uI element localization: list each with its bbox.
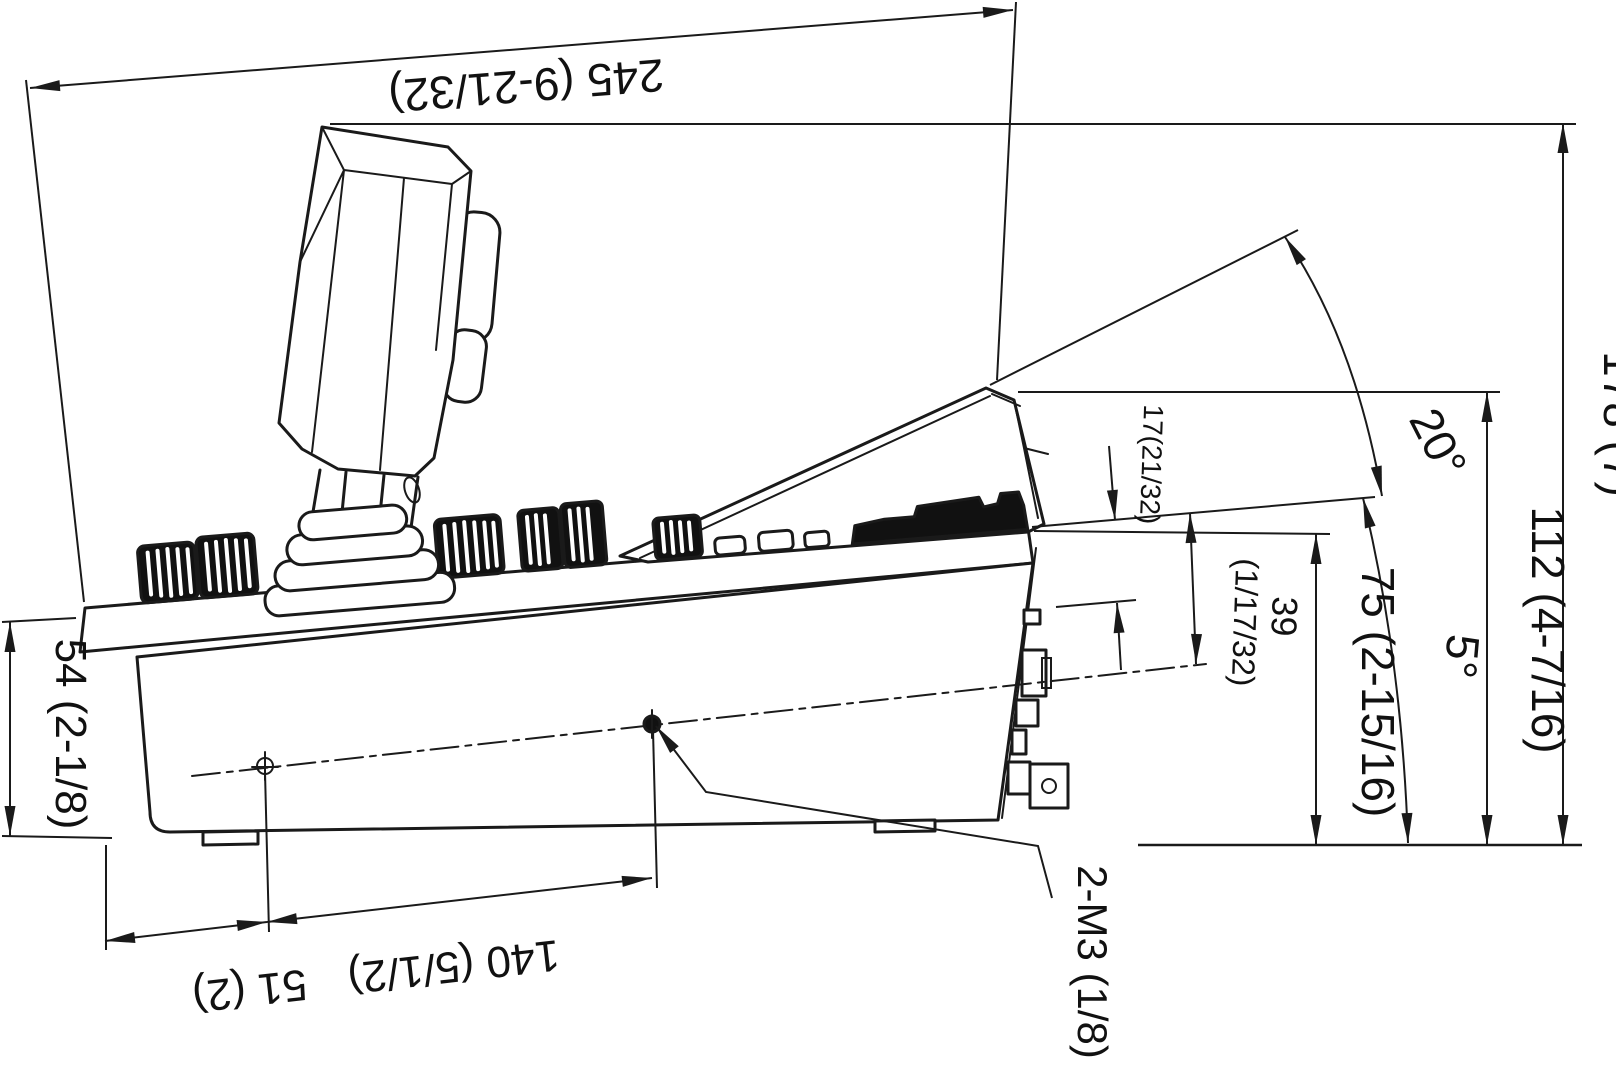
knob-small xyxy=(653,515,703,561)
connector-small xyxy=(1012,730,1026,754)
knob-pan xyxy=(434,514,505,578)
dim-overall-height-label: 178 (7) xyxy=(1594,351,1616,497)
screw-callout-label: 2-M3 (1/8) xyxy=(1069,865,1116,1059)
controller-side-view-drawing: 245 (9-21/32) 178 (7) 112 (4-7/16) 75 (2… xyxy=(0,0,1616,1080)
dim-display-angle-label: 20° xyxy=(1399,400,1477,486)
ground-tab xyxy=(1030,764,1068,808)
dim-overall-width-label: 245 (9-21/32) xyxy=(387,49,666,123)
dim-rear-panel-height-label: 112 (4-7/16) xyxy=(1522,506,1574,753)
knob-mid-pair xyxy=(517,501,607,572)
technical-drawing-page: 245 (9-21/32) 178 (7) 112 (4-7/16) 75 (2… xyxy=(0,0,1616,1080)
dim-hole-height-fraction: (1/17/32) xyxy=(1225,558,1265,687)
dim-hole-spacing-label: 140 (5/1/2) xyxy=(345,930,562,1003)
dim-hole-offset-label: 51 (2) xyxy=(190,960,310,1022)
connector-block xyxy=(1008,762,1030,794)
grip-detail-oval xyxy=(401,475,422,504)
connector-mid xyxy=(1016,700,1038,726)
dim-front-height-label: 54 (2-1/8) xyxy=(46,639,95,830)
dim-panel-angle-label: 5° xyxy=(1434,632,1490,680)
dim-panel-rear-height-label: 75 (2-15/16) xyxy=(1352,567,1404,818)
knob-left-pair xyxy=(137,533,259,604)
dim-display-offset-label: 17(21/32) xyxy=(1134,404,1169,525)
rear-bump xyxy=(1024,610,1040,624)
joystick-grip xyxy=(279,127,502,505)
foot-left xyxy=(203,831,258,845)
dim-hole-height-value: 39 xyxy=(1263,596,1305,637)
joystick-bellows xyxy=(258,500,456,616)
